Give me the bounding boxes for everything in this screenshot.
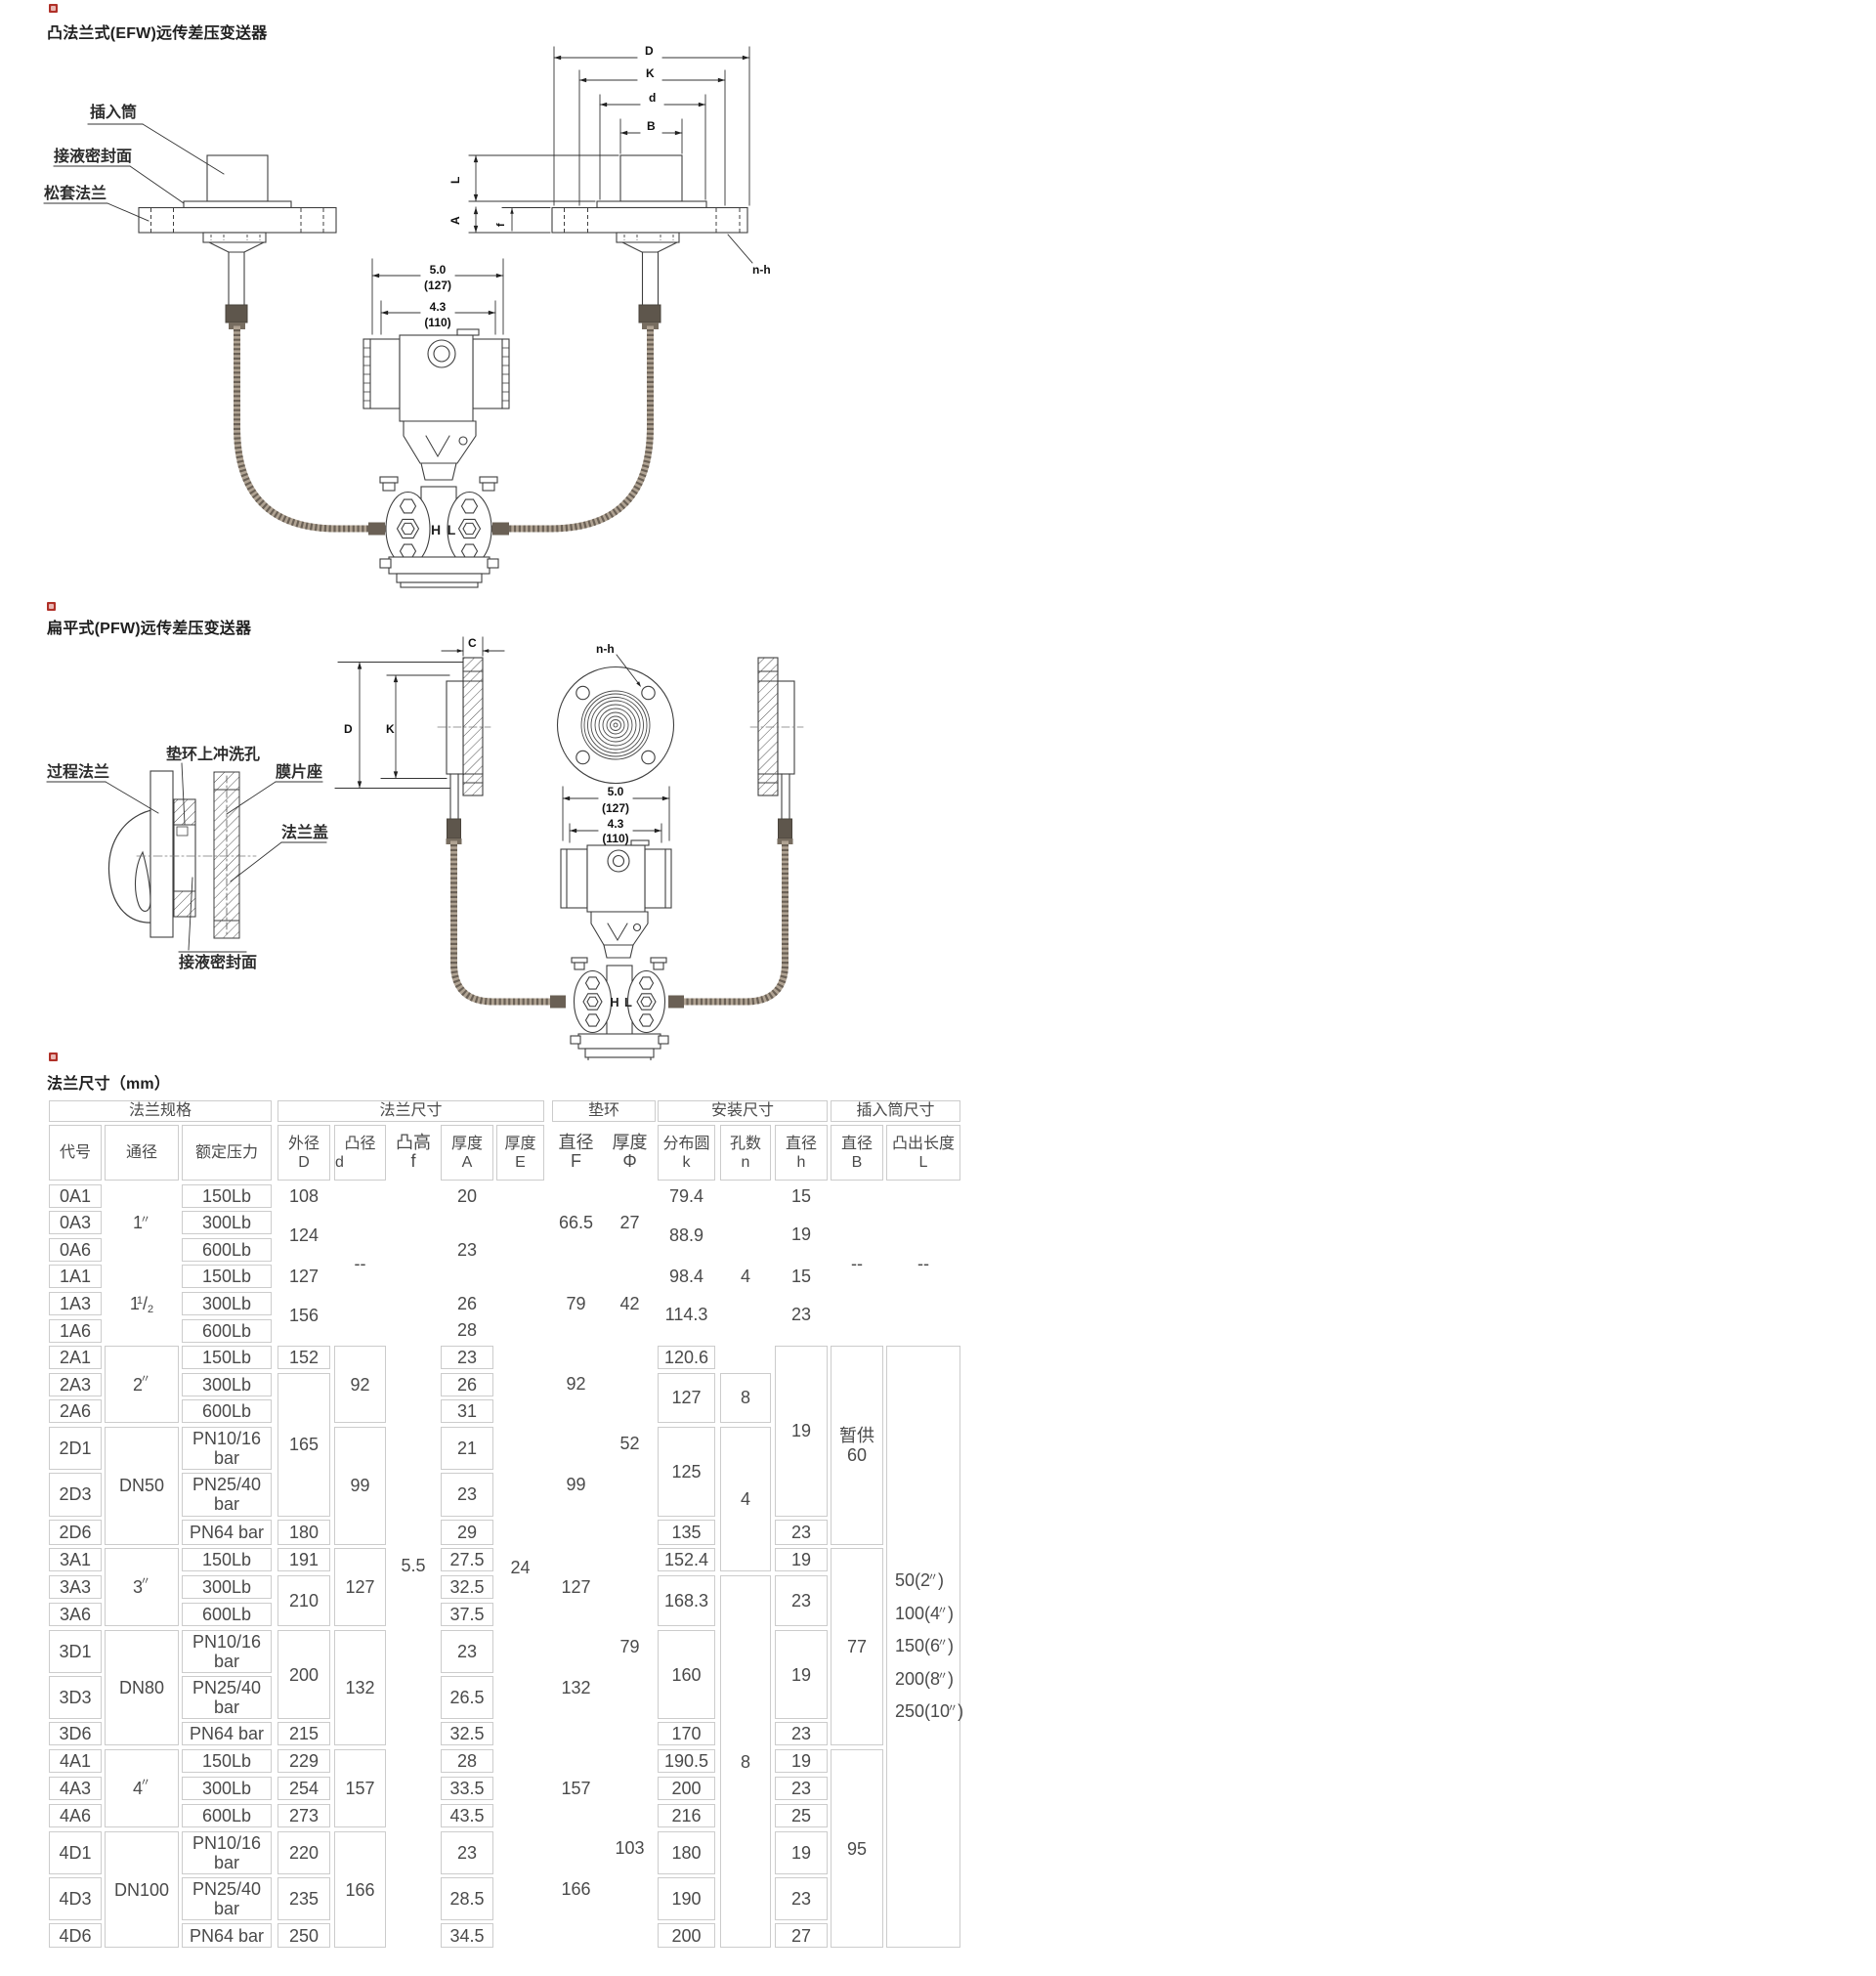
svg-text:4.3: 4.3 [608, 817, 624, 831]
svg-text:n-h: n-h [596, 642, 615, 656]
svg-text:d: d [649, 91, 656, 105]
svg-text:K: K [646, 66, 655, 80]
svg-text:(127): (127) [424, 279, 451, 292]
svg-text:H: H [610, 995, 618, 1009]
svg-text:L: L [624, 995, 632, 1009]
svg-text:4.3: 4.3 [430, 300, 447, 314]
svg-text:(110): (110) [424, 316, 450, 329]
svg-text:n-h: n-h [752, 263, 771, 277]
svg-text:垫环上冲洗孔: 垫环上冲洗孔 [166, 745, 260, 763]
svg-text:L: L [448, 522, 456, 537]
svg-text:B: B [647, 119, 656, 133]
svg-text:5.0: 5.0 [430, 263, 447, 277]
svg-text:插入筒: 插入筒 [90, 103, 137, 121]
svg-text:过程法兰: 过程法兰 [47, 762, 109, 781]
svg-text:松套法兰: 松套法兰 [44, 184, 107, 202]
svg-text:H: H [431, 522, 441, 537]
svg-text:(127): (127) [602, 801, 629, 815]
svg-text:(110): (110) [602, 832, 628, 845]
svg-text:K: K [386, 722, 395, 736]
svg-text:f: f [495, 223, 507, 227]
svg-text:法兰盖: 法兰盖 [281, 823, 328, 841]
svg-text:A: A [448, 216, 462, 225]
svg-text:接液密封面: 接液密封面 [54, 147, 132, 165]
svg-text:L: L [448, 177, 462, 184]
svg-text:5.0: 5.0 [608, 785, 624, 798]
svg-text:D: D [344, 722, 353, 736]
svg-text:接液密封面: 接液密封面 [179, 953, 257, 971]
svg-text:C: C [468, 636, 477, 650]
svg-text:膜片座: 膜片座 [276, 762, 322, 781]
svg-text:D: D [645, 44, 654, 58]
